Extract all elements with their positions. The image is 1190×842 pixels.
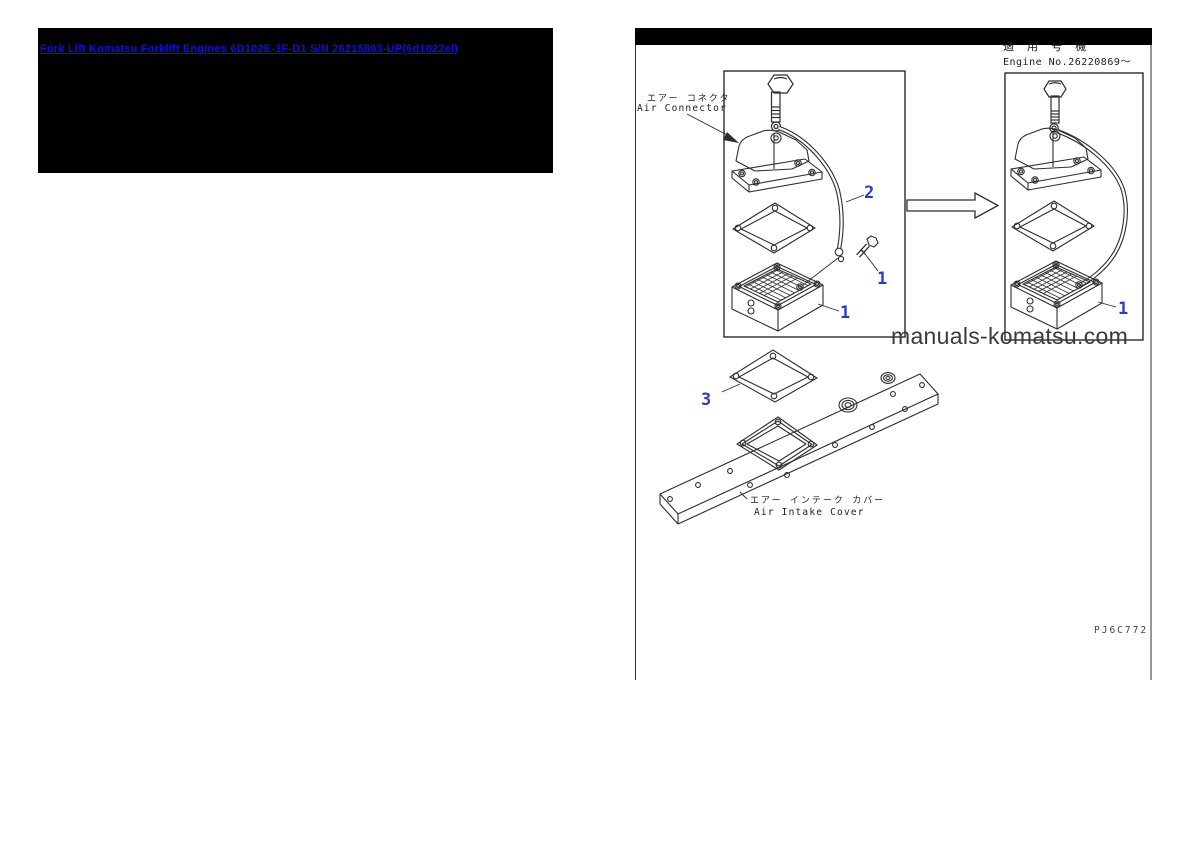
callout-1-right: 1	[1118, 299, 1128, 319]
callout-1-left: 1	[840, 303, 850, 323]
applicability-heading: 適 用 号 機	[1003, 38, 1091, 54]
leader-lines	[818, 195, 878, 311]
air-connector-pointer	[687, 114, 739, 143]
left-parts-box	[724, 71, 905, 337]
callout-1-bolt: 1	[877, 269, 887, 289]
cover-gasket	[722, 350, 817, 402]
bolt-icon	[1044, 81, 1066, 132]
page: Fork Lift Komatsu Forklift Engines 6D102…	[0, 0, 1190, 842]
catalog-link[interactable]: Fork Lift Komatsu Forklift Engines 6D102…	[40, 43, 458, 55]
exploded-diagram	[635, 28, 1152, 690]
title-banner: Fork Lift Komatsu Forklift Engines 6D102…	[38, 28, 553, 173]
bolt-icon	[768, 75, 793, 131]
tube-icon	[1057, 131, 1126, 284]
callout-2: 2	[864, 183, 874, 203]
watermark: manuals-komatsu.com	[891, 323, 1128, 350]
air-connector-label-en: Air Connector	[637, 103, 727, 114]
drawing-code: PJ6C772	[1094, 625, 1148, 636]
callout-3: 3	[701, 390, 711, 410]
tube-icon	[779, 128, 844, 285]
small-bolt-icon	[858, 236, 878, 256]
leader-line	[1098, 302, 1116, 307]
air-intake-cover-label-en: Air Intake Cover	[754, 507, 865, 518]
engine-number: Engine No.26220869～	[1003, 53, 1131, 68]
air-intake-cover-label-jp: エアー インテーク カバー	[750, 493, 885, 506]
parts-diagram-sheet: 適 用 号 機 Engine No.26220869～ エアー コネクタ Air…	[635, 28, 1152, 690]
arrow-icon	[907, 193, 998, 218]
